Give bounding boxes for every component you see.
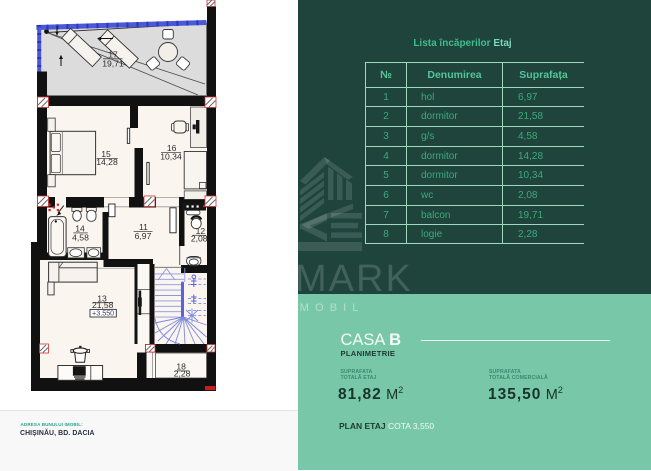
svg-text:10,34: 10,34 [160, 152, 182, 162]
svg-text:4,58: 4,58 [72, 232, 89, 242]
svg-text:+3.550: +3.550 [92, 309, 114, 318]
svg-text:14,28: 14,28 [96, 157, 118, 167]
svg-text:2,08: 2,08 [191, 233, 208, 243]
svg-text:6,97: 6,97 [135, 231, 152, 241]
svg-text:MARK: MARK [298, 258, 413, 300]
svg-text:MOBIL: MOBIL [300, 302, 365, 314]
svg-text:19,71: 19,71 [102, 58, 124, 68]
svg-text:2,28: 2,28 [174, 369, 191, 379]
